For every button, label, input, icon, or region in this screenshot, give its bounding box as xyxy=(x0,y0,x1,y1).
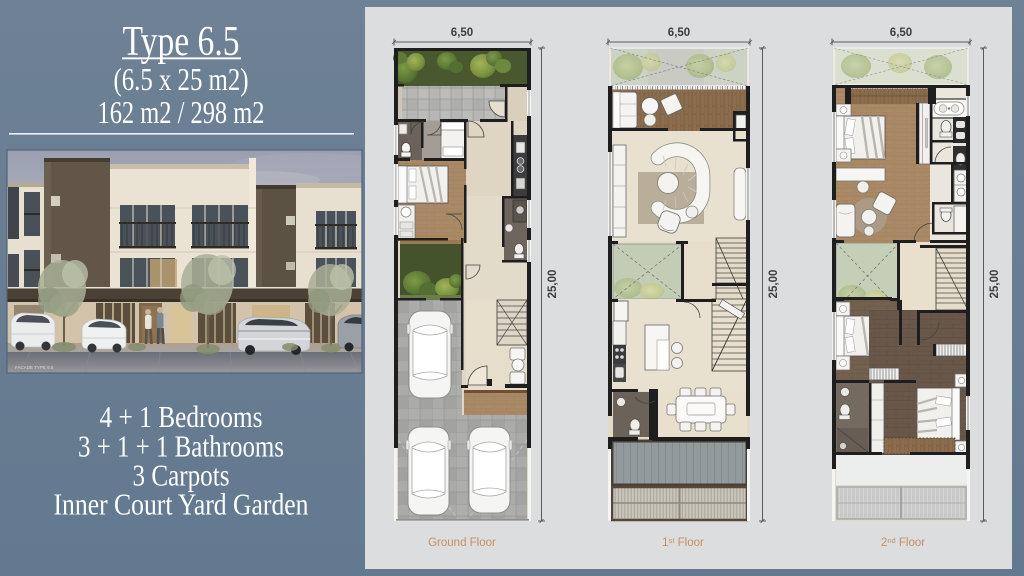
svg-text:25,00: 25,00 xyxy=(547,270,559,299)
svg-text:(6.5 x 25 m2): (6.5 x 25 m2) xyxy=(114,62,249,97)
svg-text:FACADE TYPE 6.5: FACADE TYPE 6.5 xyxy=(15,365,54,370)
svg-text:6,50: 6,50 xyxy=(451,27,473,39)
svg-text:6,50: 6,50 xyxy=(890,27,912,39)
svg-text:6,50: 6,50 xyxy=(668,27,690,39)
svg-text:25,00: 25,00 xyxy=(768,270,780,299)
svg-text:Ground Floor: Ground Floor xyxy=(428,537,496,549)
svg-text:Inner Court Yard Garden: Inner Court Yard Garden xyxy=(54,487,309,522)
svg-text:1st Floor: 1st Floor xyxy=(662,536,704,549)
svg-text:25,00: 25,00 xyxy=(989,270,1001,299)
svg-text:162 m2 / 298 m2: 162 m2 / 298 m2 xyxy=(98,95,265,130)
